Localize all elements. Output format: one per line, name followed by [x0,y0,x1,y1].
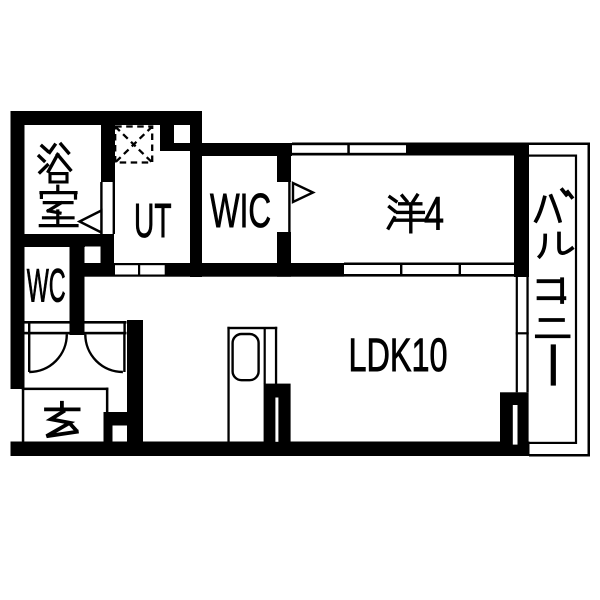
svg-text:WC: WC [27,259,66,312]
svg-text:LDK10: LDK10 [349,328,448,381]
svg-text:4: 4 [424,187,444,240]
svg-text:UT: UT [134,195,172,248]
svg-text:WIC: WIC [210,185,271,238]
